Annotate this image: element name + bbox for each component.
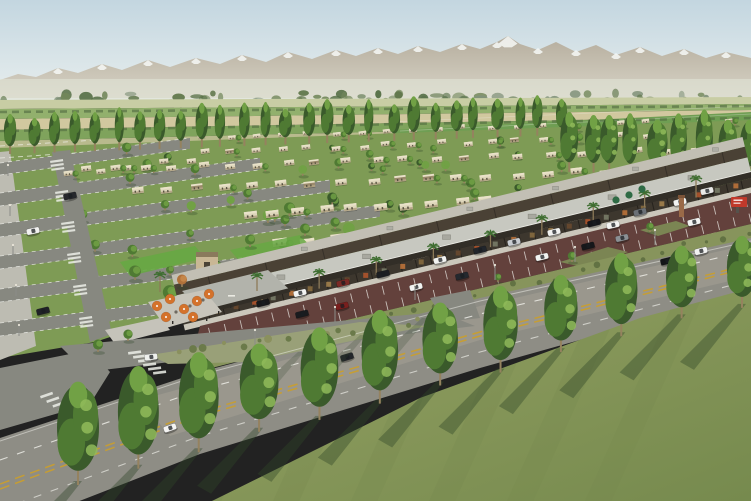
rendering-stage: Aerial rendering of a desert master-plan… xyxy=(0,0,751,501)
house xyxy=(617,120,625,125)
house-window xyxy=(486,178,488,180)
tree-shadow xyxy=(191,175,202,178)
house-window xyxy=(461,159,462,161)
tree-shadow xyxy=(548,144,555,146)
house-window xyxy=(409,145,410,147)
house-window xyxy=(466,145,467,147)
shrub xyxy=(389,312,393,316)
crown-highlight xyxy=(680,137,685,142)
umbrella-green xyxy=(638,185,645,192)
house-window xyxy=(257,136,258,137)
house-window xyxy=(87,168,88,170)
house-window xyxy=(222,188,224,190)
house-window xyxy=(258,166,259,168)
house-window xyxy=(399,159,400,161)
house-window xyxy=(83,169,84,171)
house-window xyxy=(440,129,441,130)
monument-sign xyxy=(731,197,747,207)
tree-crown-light xyxy=(550,138,554,142)
house-window xyxy=(457,177,459,179)
crown-top xyxy=(324,99,329,110)
house-window xyxy=(365,148,366,150)
crosswalk-bar xyxy=(153,370,166,374)
crown-top xyxy=(411,96,417,107)
tree-crown-light xyxy=(370,163,374,167)
house-window xyxy=(198,187,200,189)
house xyxy=(187,158,197,165)
house xyxy=(333,132,341,137)
rooftop-unit xyxy=(387,226,393,230)
storefront-glow xyxy=(733,183,738,188)
house-window xyxy=(540,126,541,127)
house xyxy=(132,187,144,195)
house-window xyxy=(281,183,283,185)
shrub xyxy=(581,267,586,272)
treeline-blob xyxy=(125,92,137,97)
tree-crown-light xyxy=(306,209,310,213)
crown-top xyxy=(283,109,289,117)
crown-highlight xyxy=(503,301,513,311)
crown-highlight xyxy=(660,129,666,135)
crown-highlight xyxy=(687,289,696,298)
treeline-blob xyxy=(394,91,402,99)
crown-highlight xyxy=(632,150,636,154)
house-window xyxy=(432,204,434,206)
treeline-blob xyxy=(698,93,705,97)
shrub xyxy=(189,345,197,353)
pole-lamp xyxy=(12,244,14,246)
crosswalk-bar xyxy=(148,366,161,370)
tree-crown-light xyxy=(74,171,78,175)
tree-shadow xyxy=(120,173,128,175)
cafe-table xyxy=(174,310,177,313)
house-window xyxy=(552,155,553,157)
house xyxy=(252,163,263,170)
house-window xyxy=(338,183,340,185)
house-window xyxy=(459,202,461,204)
house-window xyxy=(254,136,255,137)
house-window xyxy=(284,149,285,151)
tree-crown-light xyxy=(96,340,102,346)
umbrella-green xyxy=(625,191,632,198)
tree-crown-light xyxy=(497,274,501,278)
house-window xyxy=(143,168,144,170)
tree-shadow xyxy=(300,235,312,239)
house-window xyxy=(490,142,491,144)
house-window xyxy=(387,131,388,132)
tree-crown-light xyxy=(93,241,99,247)
house-window xyxy=(545,175,547,177)
storefront-glow xyxy=(308,286,313,291)
house-window xyxy=(192,161,193,163)
tree-shadow xyxy=(177,286,189,290)
house-window xyxy=(427,205,429,207)
treeline-blob xyxy=(570,90,581,98)
house-window xyxy=(98,172,99,174)
house xyxy=(301,144,310,150)
tree-crown-light xyxy=(246,190,251,195)
tree-crown-light xyxy=(424,162,429,167)
house-window xyxy=(465,158,466,160)
house-window xyxy=(255,166,256,168)
crown-highlight xyxy=(140,406,151,417)
house xyxy=(81,165,92,172)
tree-crown-light xyxy=(368,151,373,156)
tree-crown-light xyxy=(385,158,389,162)
tree-crown-light xyxy=(499,139,503,143)
house-window xyxy=(363,133,364,134)
umbrella-tip xyxy=(208,293,210,295)
house xyxy=(424,200,438,209)
rooftop-unit xyxy=(632,167,638,171)
crown-highlight xyxy=(382,326,392,336)
tree-crown-light xyxy=(342,147,346,151)
house-window xyxy=(315,162,316,164)
crown-highlight xyxy=(382,367,392,377)
house-window xyxy=(135,191,137,193)
storefront-glow xyxy=(659,201,664,206)
tree-shadow xyxy=(422,170,431,173)
crown-highlight xyxy=(631,137,635,141)
house-window xyxy=(230,138,231,139)
house-window xyxy=(386,144,387,146)
rooftop-unit xyxy=(553,186,559,190)
house-window xyxy=(323,209,325,211)
tree-shadow xyxy=(299,175,309,178)
pole-lamp xyxy=(654,229,656,231)
tree-crown-light xyxy=(391,142,395,146)
aerial-community-rendering xyxy=(0,0,751,501)
tree-shadow xyxy=(151,173,159,175)
house-window xyxy=(252,215,254,217)
tree-shadow xyxy=(341,139,348,141)
crown-highlight xyxy=(570,123,575,128)
house xyxy=(228,135,236,140)
tree-crown-light xyxy=(584,169,588,173)
crown-highlight xyxy=(624,267,633,276)
house xyxy=(407,142,416,148)
crown-top xyxy=(117,107,121,118)
tree-crown-light xyxy=(301,166,306,171)
tree-shadow xyxy=(73,178,80,180)
crown-top xyxy=(346,105,351,114)
house-window xyxy=(549,174,551,176)
house-window xyxy=(328,208,330,210)
house-window xyxy=(172,168,173,170)
house-window xyxy=(619,134,620,136)
tree-crown-light xyxy=(333,218,339,224)
house xyxy=(512,154,523,161)
house-window xyxy=(102,171,103,173)
tree-crown-light xyxy=(418,160,422,164)
tree-crown-light xyxy=(125,144,131,150)
tree-shadow xyxy=(557,171,568,174)
tree-crown-light xyxy=(432,146,436,150)
crown-highlight xyxy=(729,129,734,134)
house-window xyxy=(163,191,165,193)
house xyxy=(309,159,320,166)
house xyxy=(219,183,231,191)
crown-top xyxy=(518,97,522,106)
house xyxy=(335,178,347,186)
house-window xyxy=(280,135,281,136)
treeline-blob xyxy=(357,94,365,99)
house-window xyxy=(573,171,575,173)
house-window xyxy=(290,162,291,164)
house-window xyxy=(227,167,228,169)
house-window xyxy=(643,121,644,122)
house xyxy=(394,175,406,183)
rooftop-unit xyxy=(712,148,718,152)
tree-crown-light xyxy=(418,143,422,147)
crown-highlight xyxy=(687,258,696,267)
umbrella-tip xyxy=(183,308,185,310)
tree-crown-light xyxy=(303,224,309,230)
house xyxy=(642,119,650,124)
tree-shadow xyxy=(647,232,656,235)
house xyxy=(110,165,121,172)
tree-crown-light xyxy=(236,149,240,153)
house-window xyxy=(342,182,344,184)
house-window xyxy=(306,185,308,187)
rooftop-unit xyxy=(442,235,450,240)
crown-highlight xyxy=(445,316,455,326)
crown-top xyxy=(157,110,162,119)
crown-top xyxy=(52,112,57,122)
tree-shadow xyxy=(131,173,138,175)
house xyxy=(546,152,557,159)
crown-highlight xyxy=(385,346,395,356)
house-window xyxy=(360,133,361,134)
tree-shadow xyxy=(245,246,257,250)
rooftop-unit xyxy=(363,254,371,259)
tree-shadow xyxy=(281,226,292,229)
house xyxy=(251,147,260,153)
house-window xyxy=(337,149,338,151)
house-window xyxy=(311,163,312,165)
house xyxy=(373,156,384,163)
shrub xyxy=(264,335,272,343)
tree-crown-light xyxy=(649,223,654,228)
shrub xyxy=(286,336,292,342)
house-window xyxy=(249,186,251,188)
tree-crown-light xyxy=(578,124,582,128)
house-window xyxy=(203,151,204,153)
shrub xyxy=(258,339,262,343)
house xyxy=(96,169,106,176)
shrub xyxy=(350,330,356,336)
house-window xyxy=(638,150,639,152)
house xyxy=(332,146,341,152)
tree-shadow xyxy=(390,148,397,150)
tree-crown-light xyxy=(331,193,337,199)
treeline-blob xyxy=(313,95,321,99)
tree-crown-light xyxy=(122,166,126,170)
tree-shadow xyxy=(368,171,376,174)
house xyxy=(279,146,288,152)
house xyxy=(246,181,258,189)
house xyxy=(450,174,462,182)
house xyxy=(513,173,525,181)
house-window xyxy=(382,207,384,209)
house xyxy=(437,139,446,145)
tree-crown-light xyxy=(153,166,157,170)
umbrella-green xyxy=(612,196,619,203)
crown-top xyxy=(311,327,328,351)
house xyxy=(320,204,334,213)
house xyxy=(284,159,295,166)
crown-highlight xyxy=(567,321,576,330)
tree-shadow xyxy=(556,160,564,162)
house xyxy=(383,129,391,134)
house-window xyxy=(469,144,470,146)
house-window xyxy=(232,138,233,139)
house xyxy=(225,163,236,170)
house-window xyxy=(167,190,169,192)
house-window xyxy=(376,160,377,162)
house-window xyxy=(277,184,279,186)
crown-top xyxy=(199,103,204,114)
cafe-table xyxy=(188,304,191,307)
house-window xyxy=(438,159,439,161)
umbrella-tip xyxy=(196,300,198,302)
crown-top xyxy=(471,97,475,107)
house-window xyxy=(495,156,496,158)
pole-lamp xyxy=(494,264,496,266)
shrub xyxy=(473,294,476,297)
pole-lamp xyxy=(334,306,336,308)
house-window xyxy=(403,158,404,160)
crown-highlight xyxy=(565,304,574,313)
treeline-blob xyxy=(612,89,619,99)
tree-crown-light xyxy=(126,330,132,336)
house-window xyxy=(544,140,545,142)
house xyxy=(340,157,351,164)
house-window xyxy=(577,171,579,173)
house-window xyxy=(434,160,435,162)
pole-lamp xyxy=(15,284,17,286)
entry-tower-cap xyxy=(196,252,218,257)
tree-shadow xyxy=(441,171,451,174)
storefront-glow xyxy=(622,210,627,215)
house-window xyxy=(116,168,117,170)
house xyxy=(265,210,279,219)
crown-top xyxy=(454,100,459,109)
person-figure xyxy=(218,311,219,314)
crown-highlight xyxy=(263,377,274,388)
obelisk-cap xyxy=(678,195,685,198)
house-window xyxy=(362,148,363,150)
house-window xyxy=(194,187,196,189)
house-window xyxy=(257,150,258,152)
crown-top xyxy=(93,112,98,121)
shrub xyxy=(681,241,686,246)
shrub xyxy=(660,251,664,255)
treeline-blob xyxy=(584,90,592,98)
crown-highlight xyxy=(659,140,665,146)
house-window xyxy=(351,207,353,209)
tree-shadow xyxy=(93,351,105,355)
tree-shadow xyxy=(434,183,442,186)
crown-top xyxy=(218,105,223,115)
crown-top xyxy=(392,104,397,113)
tree-shadow xyxy=(126,183,137,186)
house-window xyxy=(518,157,519,159)
shrub xyxy=(406,323,411,328)
tree-crown-light xyxy=(248,235,254,241)
storefront-glow xyxy=(493,242,498,247)
crown-highlight xyxy=(611,138,616,143)
storefront-glow xyxy=(419,259,424,264)
house-window xyxy=(668,152,669,154)
house-window xyxy=(304,133,305,134)
house-window xyxy=(281,149,282,151)
pole-lamp xyxy=(254,329,256,331)
crown-top xyxy=(73,111,78,121)
tree-crown-light xyxy=(444,161,449,166)
house xyxy=(489,152,500,159)
house-window xyxy=(377,208,379,210)
crown-highlight xyxy=(611,125,616,130)
crown-top xyxy=(367,99,371,109)
house-window xyxy=(226,187,228,189)
tree-crown-light xyxy=(133,267,140,274)
tree-crown-light xyxy=(131,246,137,252)
house-window xyxy=(541,140,542,142)
house xyxy=(225,148,234,154)
tree-shadow xyxy=(161,210,171,213)
tree-crown-light xyxy=(473,189,479,195)
house-window xyxy=(516,177,518,179)
house-window xyxy=(299,211,301,213)
crown-highlight xyxy=(595,125,600,130)
house-window xyxy=(402,207,404,209)
shrub xyxy=(705,240,708,243)
house-window xyxy=(310,184,312,186)
rooftop-unit xyxy=(528,214,536,219)
shrub xyxy=(222,341,226,345)
crown-top xyxy=(242,103,247,114)
house-window xyxy=(621,123,622,124)
crown-highlight xyxy=(612,150,617,155)
house xyxy=(191,183,203,191)
crown-top xyxy=(137,111,142,120)
house xyxy=(64,170,74,177)
house xyxy=(374,203,388,212)
house-window xyxy=(247,215,249,217)
shrub xyxy=(335,328,341,334)
tree-crown-light xyxy=(388,201,393,206)
crown-highlight xyxy=(86,444,98,456)
tree-shadow xyxy=(234,156,241,158)
crown-top xyxy=(32,118,37,126)
house-window xyxy=(139,190,141,192)
cafe-table xyxy=(201,298,204,301)
cafe-sign xyxy=(228,295,235,297)
house xyxy=(244,211,258,220)
house xyxy=(253,134,261,139)
tree-crown-light xyxy=(229,197,234,202)
house-window xyxy=(379,159,380,161)
tree-shadow xyxy=(230,193,238,196)
house-window xyxy=(253,151,254,153)
tree-shadow xyxy=(243,199,253,202)
house-window xyxy=(407,206,409,208)
house-window xyxy=(253,185,255,187)
crown-highlight xyxy=(706,122,711,127)
tree-shadow xyxy=(497,146,504,148)
house-window xyxy=(161,162,162,164)
